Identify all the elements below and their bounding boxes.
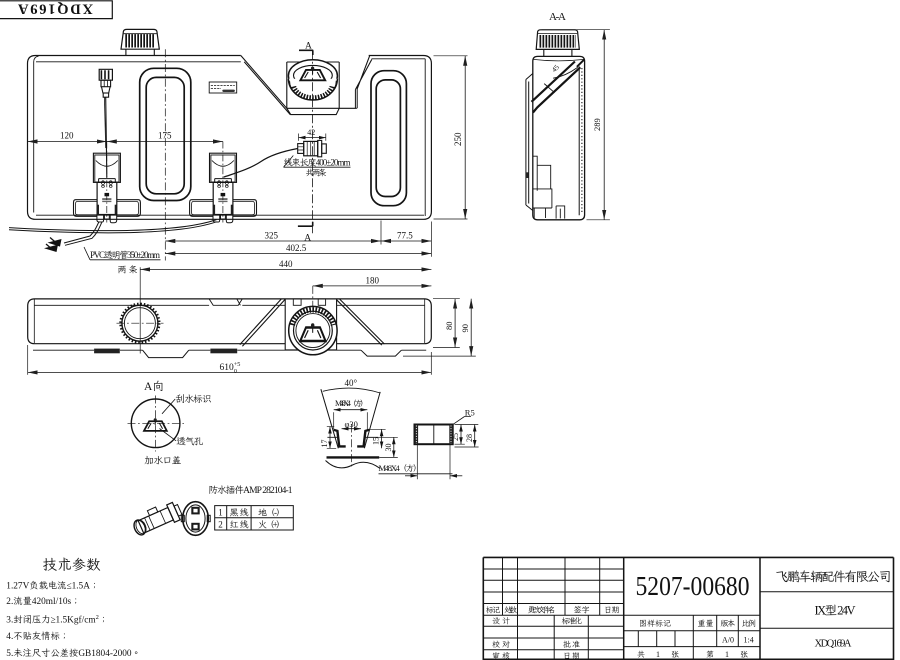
svg-text:17: 17 xyxy=(320,440,329,448)
svg-text:批 准: 批 准 xyxy=(563,640,580,649)
svg-text:版本: 版本 xyxy=(721,619,736,628)
svg-text:红线: 红线 xyxy=(230,520,249,530)
svg-text:共两条: 共两条 xyxy=(306,168,327,178)
svg-text:25: 25 xyxy=(451,433,460,441)
svg-text:4.不贴友情标；: 4.不贴友情标； xyxy=(6,631,69,642)
svg-text:610+50: 610+50 xyxy=(220,361,241,375)
svg-text:A-A: A-A xyxy=(549,11,566,23)
svg-text:180: 180 xyxy=(366,275,380,285)
svg-text:透气孔: 透气孔 xyxy=(176,437,203,448)
svg-text:更改文件名: 更改文件名 xyxy=(528,606,556,615)
svg-text:日期: 日期 xyxy=(604,606,620,615)
svg-text:A: A xyxy=(305,42,312,52)
svg-text:440: 440 xyxy=(279,259,293,269)
svg-text:90: 90 xyxy=(460,324,470,333)
svg-text:A: A xyxy=(304,234,311,244)
svg-text:技术参数: 技术参数 xyxy=(43,558,102,574)
svg-text:40°: 40° xyxy=(345,378,358,388)
svg-text:比 例: 比 例 xyxy=(742,619,757,628)
svg-text:M48X4（方）: M48X4（方） xyxy=(335,399,368,408)
svg-text:2.流量420ml/10s；: 2.流量420ml/10s； xyxy=(6,596,80,607)
svg-text:处数: 处数 xyxy=(504,606,517,615)
svg-text:5.未注尺寸公差按GB1804-2000。: 5.未注尺寸公差按GB1804-2000。 xyxy=(6,648,141,659)
svg-text:15: 15 xyxy=(372,437,381,445)
svg-text:共 1 张: 共 1 张 xyxy=(637,650,679,659)
svg-text:审 核: 审 核 xyxy=(492,651,510,660)
svg-text:R5: R5 xyxy=(465,407,475,417)
svg-text:42: 42 xyxy=(307,128,315,137)
svg-text:加水口盖: 加水口盖 xyxy=(144,455,181,466)
svg-text:5207-00680: 5207-00680 xyxy=(636,570,750,601)
svg-text:IX型 24V: IX型 24V xyxy=(815,604,856,618)
svg-text:A/0: A/0 xyxy=(722,635,734,644)
svg-text:签 字: 签 字 xyxy=(574,606,590,615)
svg-text:28: 28 xyxy=(465,434,474,442)
svg-text:A向: A向 xyxy=(144,380,164,393)
svg-text:地（-）: 地（-） xyxy=(258,507,285,517)
svg-text:325: 325 xyxy=(265,231,279,241)
svg-text:两条: 两条 xyxy=(118,264,138,274)
svg-text:2: 2 xyxy=(218,520,223,530)
svg-text:线束长度400±20mm: 线束长度400±20mm xyxy=(284,157,351,167)
svg-text:刮水标识: 刮水标识 xyxy=(176,394,212,405)
svg-text:防水插件AMP 282104-1: 防水插件AMP 282104-1 xyxy=(209,485,293,496)
svg-text:标准化: 标准化 xyxy=(562,617,583,626)
svg-text:1:4: 1:4 xyxy=(744,635,754,644)
svg-text:1: 1 xyxy=(218,507,223,517)
svg-text:PVC透明管350±20mm: PVC透明管350±20mm xyxy=(90,250,160,260)
svg-text:402.5: 402.5 xyxy=(286,243,307,253)
svg-text:80: 80 xyxy=(444,322,454,331)
svg-text:黑线: 黑线 xyxy=(230,507,249,517)
svg-text:日 期: 日 期 xyxy=(563,651,580,660)
svg-text:飞鹏车辆配件有限公司: 飞鹏车辆配件有限公司 xyxy=(776,569,892,584)
svg-text:XDQ169A: XDQ169A xyxy=(17,1,93,17)
svg-text:图 样 标 记: 图 样 标 记 xyxy=(639,619,671,628)
svg-text:77.5: 77.5 xyxy=(397,231,413,241)
svg-text:120: 120 xyxy=(60,131,74,141)
svg-text:重 量: 重 量 xyxy=(698,619,714,628)
svg-text:1.27V负载电流≤1.5A；: 1.27V负载电流≤1.5A； xyxy=(6,581,99,592)
svg-text:校 对: 校 对 xyxy=(492,640,510,649)
svg-text:标记: 标记 xyxy=(486,606,501,615)
svg-text:3.封闭压力≥1.5Kgf/cm2；: 3.封闭压力≥1.5Kgf/cm2； xyxy=(6,614,108,626)
svg-text:XDQ169A: XDQ169A xyxy=(815,638,852,649)
svg-text:火（+）: 火（+） xyxy=(258,520,285,530)
svg-text:30: 30 xyxy=(384,444,393,452)
svg-text:M48X4（方）: M48X4（方） xyxy=(379,463,422,473)
svg-text:250: 250 xyxy=(453,132,463,146)
svg-text:45: 45 xyxy=(550,63,561,74)
svg-text:289: 289 xyxy=(592,118,602,131)
svg-text:设 计: 设 计 xyxy=(492,617,510,626)
svg-text:第 1 张: 第 1 张 xyxy=(706,650,748,659)
